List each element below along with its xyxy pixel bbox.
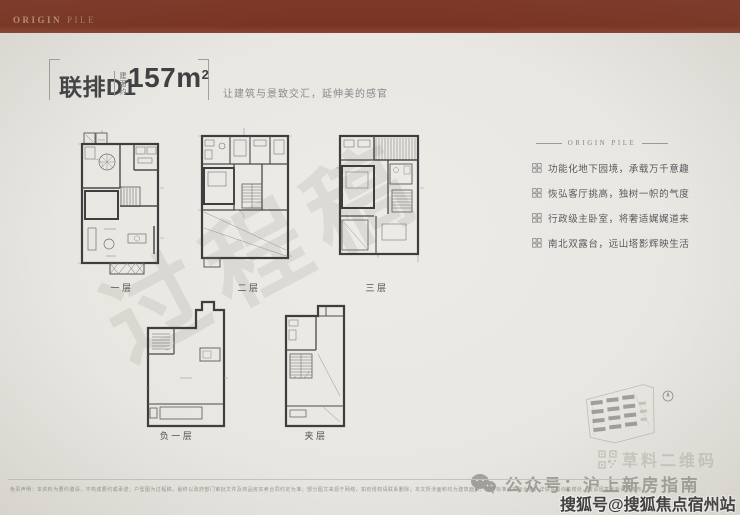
heading-rule-left [536, 143, 562, 144]
feature-text: 行政级主卧室，将奢适娓娓道来 [548, 211, 689, 225]
sohu-badge: 搜狐号@搜狐焦点宿州站 [560, 491, 736, 515]
area-prefix-label: 建面约 [119, 72, 126, 96]
feature-item-1: 功能化地下园境，承载万千意趣 [532, 161, 689, 175]
plan-label-level-2: 二层 [219, 281, 279, 294]
floorplan-basement [144, 298, 230, 430]
qr-watermark-text: 草料二维码 [622, 447, 717, 471]
seal-icon [532, 213, 542, 223]
area-superscript: 2 [202, 67, 210, 82]
floorplan-mezzanine [282, 304, 352, 430]
brand-secondary: PILE [67, 15, 96, 25]
site-plan-minimap [579, 378, 665, 450]
plan-label-level-3: 三层 [347, 281, 407, 294]
seal-icon [532, 163, 542, 173]
title-divider [114, 71, 115, 96]
floorplan-level-2 [196, 126, 294, 274]
compass-icon [661, 389, 675, 403]
feature-item-2: 恢弘客厅挑高，独树一帜的气度 [532, 186, 689, 200]
heading-brand-text: ORIGIN PILE [568, 139, 637, 147]
footer-divider [8, 479, 624, 480]
heading-rule-right [642, 143, 668, 144]
feature-text: 南北双露台，远山塔影辉映生活 [548, 236, 689, 250]
seal-icon [532, 238, 542, 248]
plan-label-basement: 负一层 [145, 429, 209, 442]
brand-logo: ORIGINPILE [13, 15, 96, 25]
brand-primary: ORIGIN [13, 15, 62, 25]
feature-item-4: 南北双露台，远山塔影辉映生活 [532, 236, 689, 250]
area-value: 157m2 [128, 62, 209, 94]
feature-item-3: 行政级主卧室，将奢适娓娓道来 [532, 211, 689, 225]
poster-canvas: ORIGINPILE 过程稿 联排D1 建面约 157m2 让建筑与景致交汇，延… [0, 0, 740, 515]
qr-code-icon [598, 450, 617, 469]
top-bar: ORIGINPILE [0, 0, 740, 33]
floorplan-level-3 [334, 128, 424, 268]
plan-label-mezzanine: 夹层 [286, 429, 346, 442]
feature-text: 恢弘客厅挑高，独树一帜的气度 [548, 186, 689, 200]
plan-label-level-1: 一层 [92, 281, 152, 294]
qr-watermark: 草料二维码 [598, 447, 717, 471]
feature-text: 功能化地下园境，承载万千意趣 [548, 161, 689, 175]
features-heading: ORIGIN PILE [536, 139, 668, 147]
floorplan-level-1 [76, 128, 164, 278]
slogan-text: 让建筑与景致交汇，延伸美的感官 [223, 85, 388, 100]
seal-icon [532, 188, 542, 198]
